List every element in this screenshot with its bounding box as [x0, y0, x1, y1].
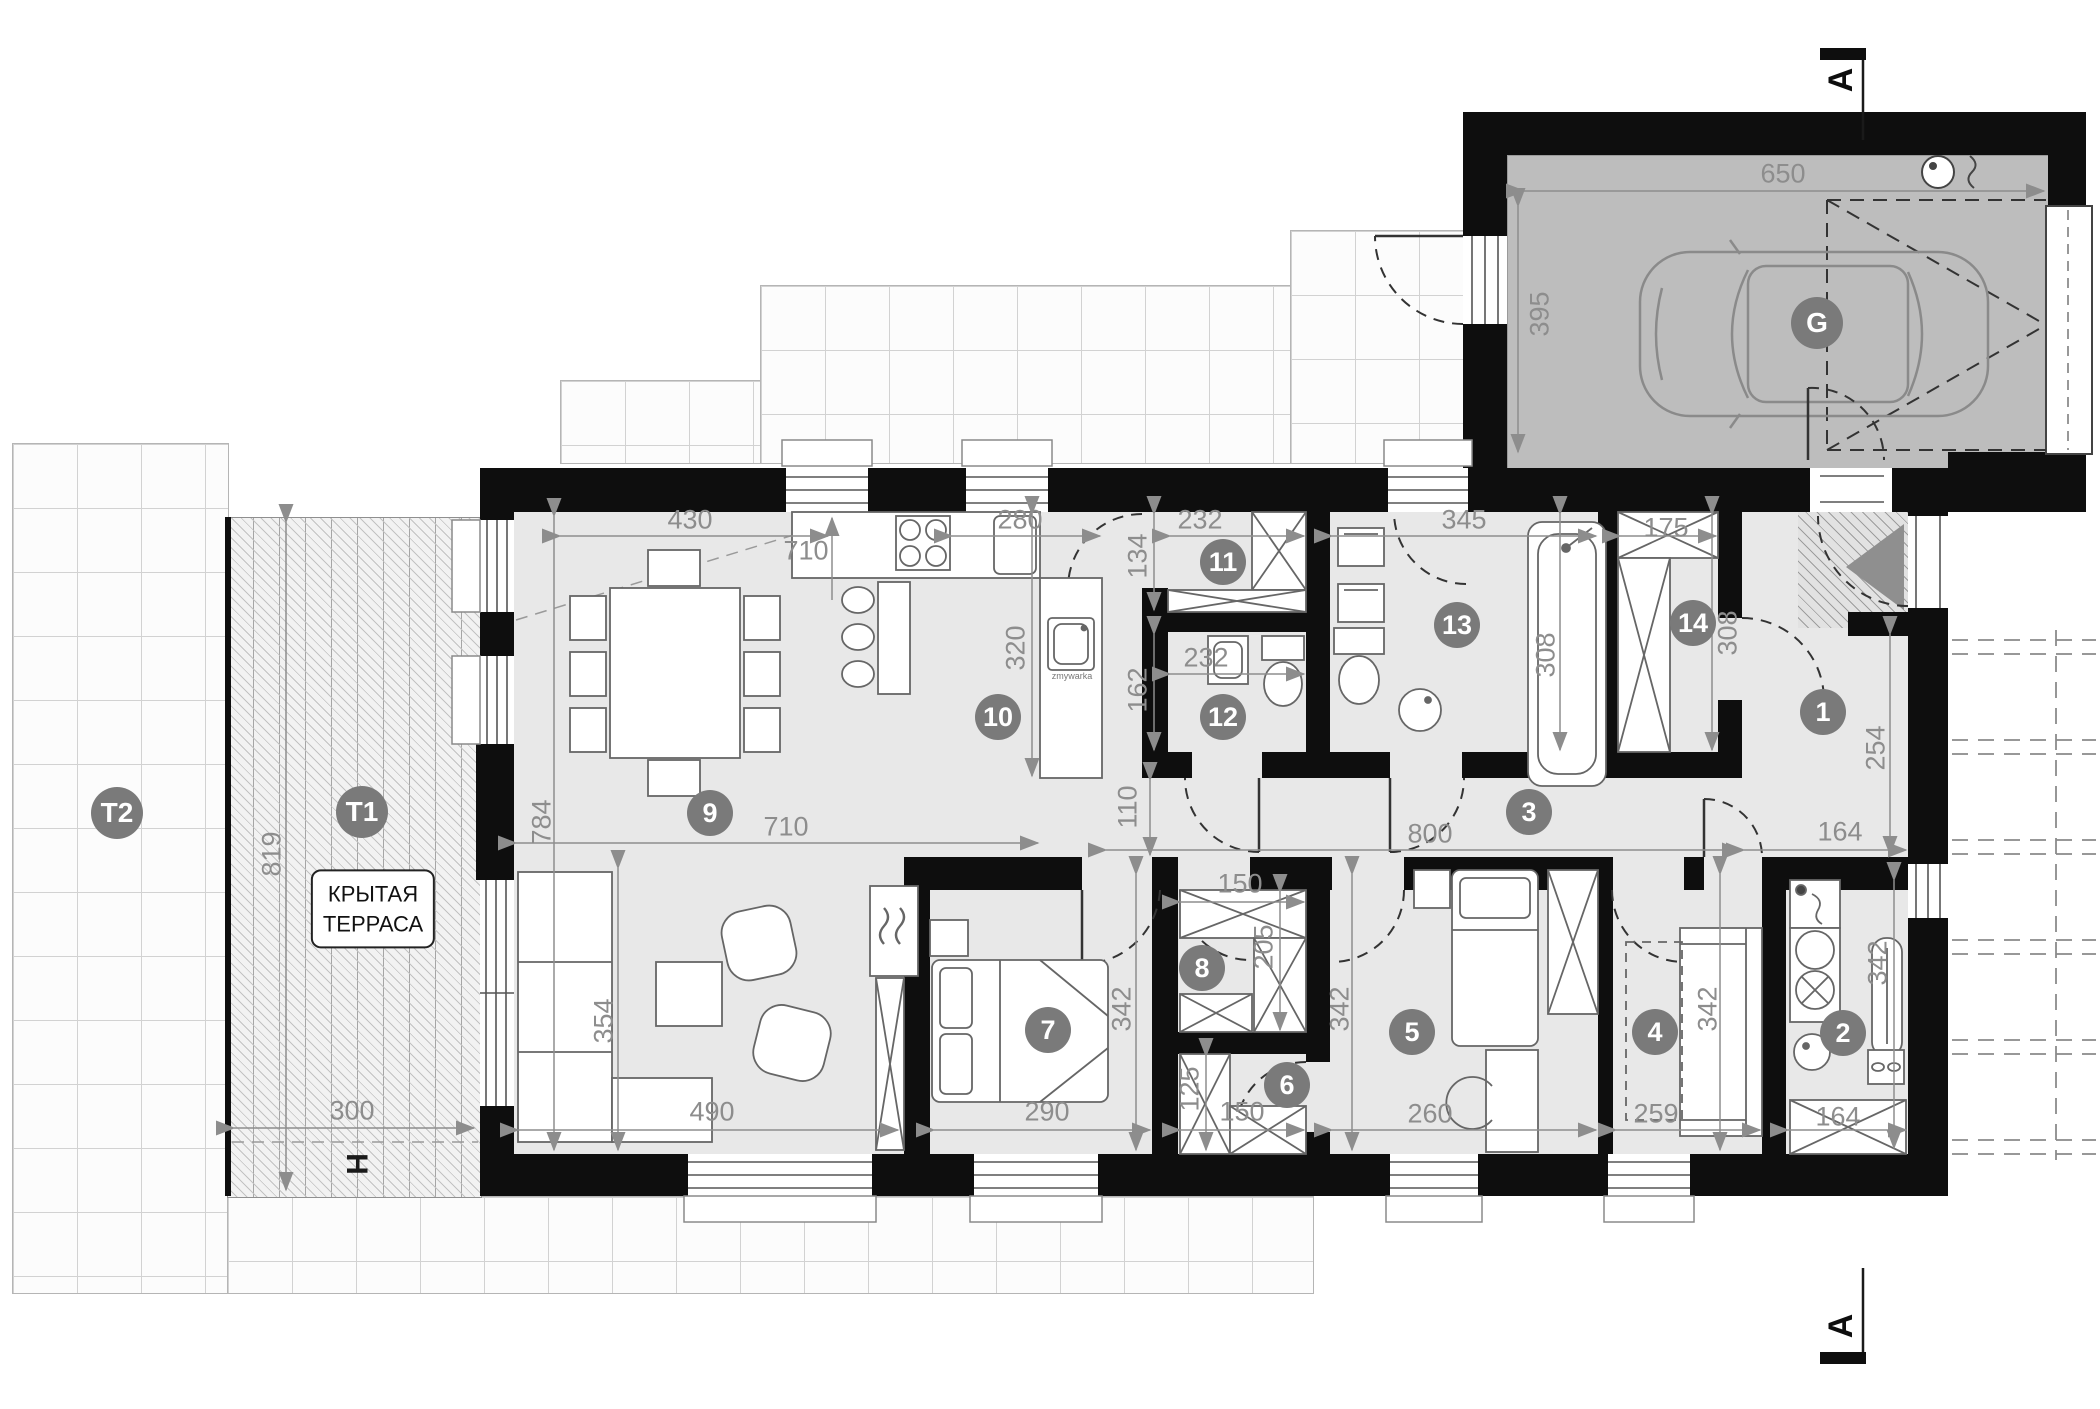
dim-room6-width: 150	[1219, 1099, 1264, 1126]
section-letter-top: A	[1824, 68, 1858, 93]
dim-kitchen-window: 280	[997, 507, 1042, 534]
dim-living-top-b: 710	[783, 538, 828, 565]
dim-room13-depth: 308	[1533, 632, 1560, 677]
room-badge-2: 2	[1820, 1010, 1866, 1056]
dim-lounge-width: 490	[689, 1099, 734, 1126]
floor-plan: 650 395 430 710 280 232 345 175 134 320 …	[0, 0, 2100, 1409]
room-badge-11: 11	[1200, 539, 1246, 585]
dim-hall-width: 164	[1817, 819, 1862, 846]
dim-room6-depth: 125	[1177, 1066, 1204, 1111]
room-badge-5: 5	[1389, 1009, 1435, 1055]
room-badge-7: 7	[1025, 1007, 1071, 1053]
room-badge-9: 9	[687, 790, 733, 836]
room-badge-13: 13	[1434, 602, 1480, 648]
dim-garage-width: 650	[1760, 161, 1805, 188]
dim-living-top-a: 430	[667, 507, 712, 534]
terrace2-badge: T2	[91, 787, 143, 839]
dim-room8-depth: 205	[1251, 924, 1278, 969]
dim-terrace-width: 300	[329, 1098, 374, 1125]
dim-room5-depth: 342	[1327, 986, 1354, 1031]
room-badge-10: 10	[975, 694, 1021, 740]
room-badge-6: 6	[1264, 1062, 1310, 1108]
section-bar-bottom	[1820, 1352, 1866, 1364]
terrace1-badge: T1	[336, 786, 388, 838]
garage-badge: G	[1791, 297, 1843, 349]
sink-note: zmywarka	[1052, 671, 1093, 681]
dim-lounge-depth: 354	[591, 998, 618, 1043]
dim-corridor-length: 800	[1407, 821, 1452, 848]
room-badge-1: 1	[1800, 689, 1846, 735]
dim-garage-depth: 395	[1527, 291, 1554, 336]
terrace-label-line1: КРЫТАЯ	[323, 879, 423, 909]
dim-room4-depth: 342	[1695, 986, 1722, 1031]
dim-living-depth: 784	[529, 799, 556, 844]
room-badge-8: 8	[1179, 945, 1225, 991]
dim-room5-width: 260	[1407, 1101, 1452, 1128]
dim-room12-width: 232	[1183, 645, 1228, 672]
terrace-label-line2: ТЕРРАСА	[323, 909, 423, 939]
section-letter-bottom: A	[1824, 1314, 1858, 1339]
dim-room14-depth: 308	[1715, 610, 1742, 655]
room-badge-12: 12	[1200, 694, 1246, 740]
dim-room4-width: 259	[1633, 1101, 1678, 1128]
section-bar-top	[1820, 48, 1866, 60]
dim-room2-depth: 342	[1865, 940, 1892, 985]
room-badge-4: 4	[1632, 1009, 1678, 1055]
dim-terrace-depth: 819	[259, 831, 286, 876]
dim-room13-width: 345	[1441, 507, 1486, 534]
dim-room14-width: 175	[1643, 515, 1688, 542]
covered-terrace-label: КРЫТАЯ ТЕРРАСА	[311, 869, 435, 948]
dim-room11-depth: 134	[1125, 533, 1152, 578]
dim-room8-width: 150	[1217, 871, 1262, 898]
dim-room2-width: 164	[1815, 1104, 1860, 1131]
dim-room12-depth: 162	[1125, 667, 1152, 712]
dim-hall-depth: 254	[1863, 725, 1890, 770]
room-badge-3: 3	[1506, 789, 1552, 835]
dim-corridor-width: 110	[1115, 785, 1142, 828]
plan-linework	[0, 0, 2100, 1409]
dim-kitchen-depth: 320	[1003, 625, 1030, 670]
dim-room7-width: 290	[1024, 1099, 1069, 1126]
dim-living-width: 710	[763, 814, 808, 841]
dim-room11-width: 232	[1177, 507, 1222, 534]
dim-room7-depth: 342	[1109, 986, 1136, 1031]
room-badge-14: 14	[1670, 600, 1716, 646]
steel-column-symbol: H	[341, 1153, 371, 1175]
